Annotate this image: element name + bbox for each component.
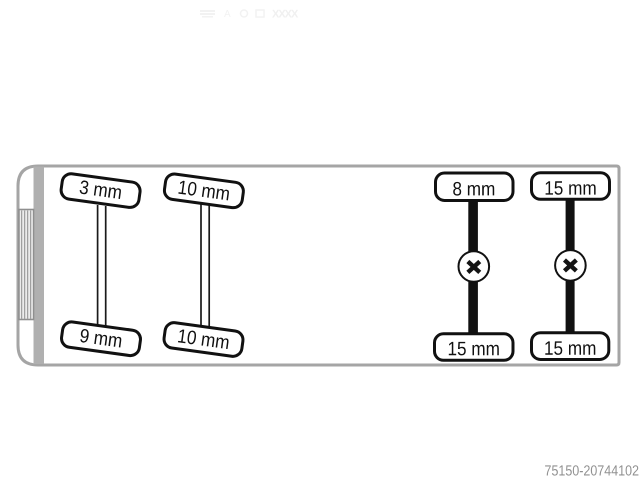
svg-text:XXXX: XXXX: [272, 9, 299, 21]
svg-text:A: A: [224, 9, 231, 20]
